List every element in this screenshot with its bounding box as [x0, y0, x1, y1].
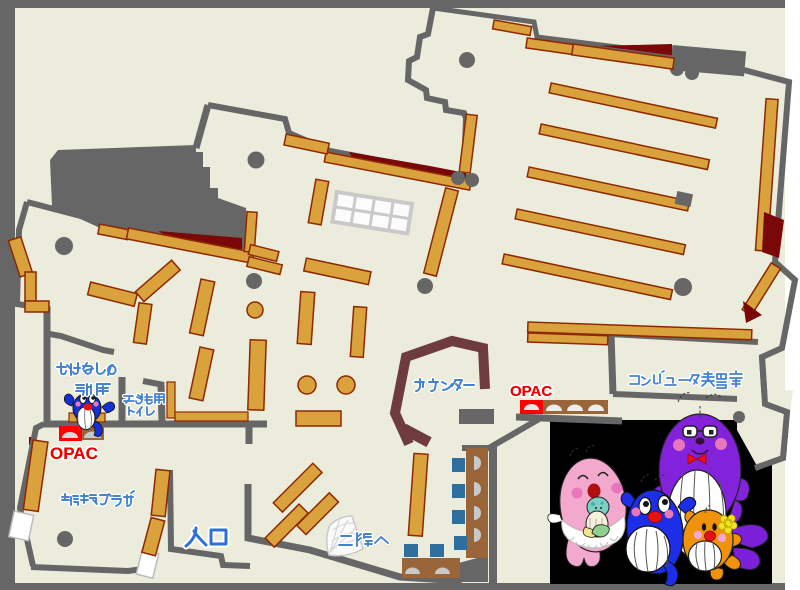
svg-text:OPAC: OPAC: [50, 444, 98, 463]
svg-text:OPAC: OPAC: [510, 383, 552, 400]
